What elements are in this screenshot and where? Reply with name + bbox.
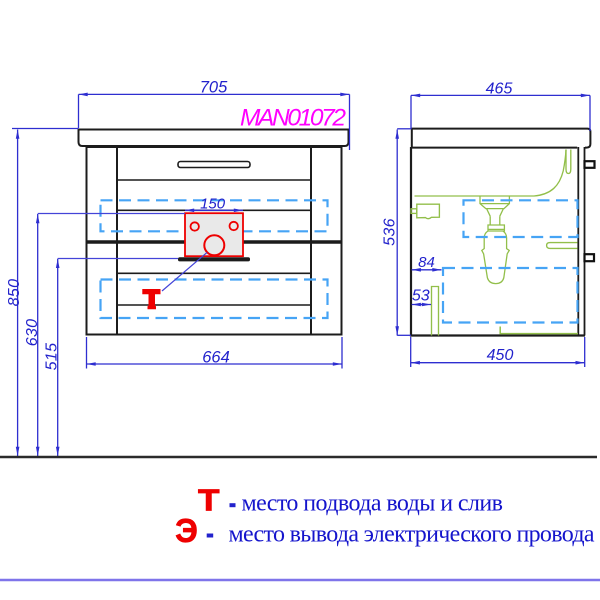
svg-text:150: 150	[200, 196, 226, 213]
svg-text:53: 53	[412, 287, 430, 304]
svg-text:850: 850	[6, 279, 23, 307]
svg-text:Т: Т	[198, 483, 220, 518]
svg-text:536: 536	[382, 218, 399, 246]
svg-text:Э: Э	[175, 512, 198, 549]
svg-text:450: 450	[487, 347, 514, 364]
svg-text:84: 84	[418, 254, 435, 271]
svg-text:515: 515	[44, 343, 61, 371]
svg-text:место подвода воды и слив: место подвода воды и слив	[242, 491, 504, 517]
svg-text:705: 705	[200, 79, 228, 97]
svg-text:465: 465	[486, 80, 513, 97]
svg-text:MAN01072: MAN01072	[240, 105, 346, 132]
svg-text:место вывода электрического пр: место вывода электрического провода	[229, 521, 595, 547]
svg-text:664: 664	[202, 349, 230, 367]
svg-text:630: 630	[24, 319, 41, 347]
